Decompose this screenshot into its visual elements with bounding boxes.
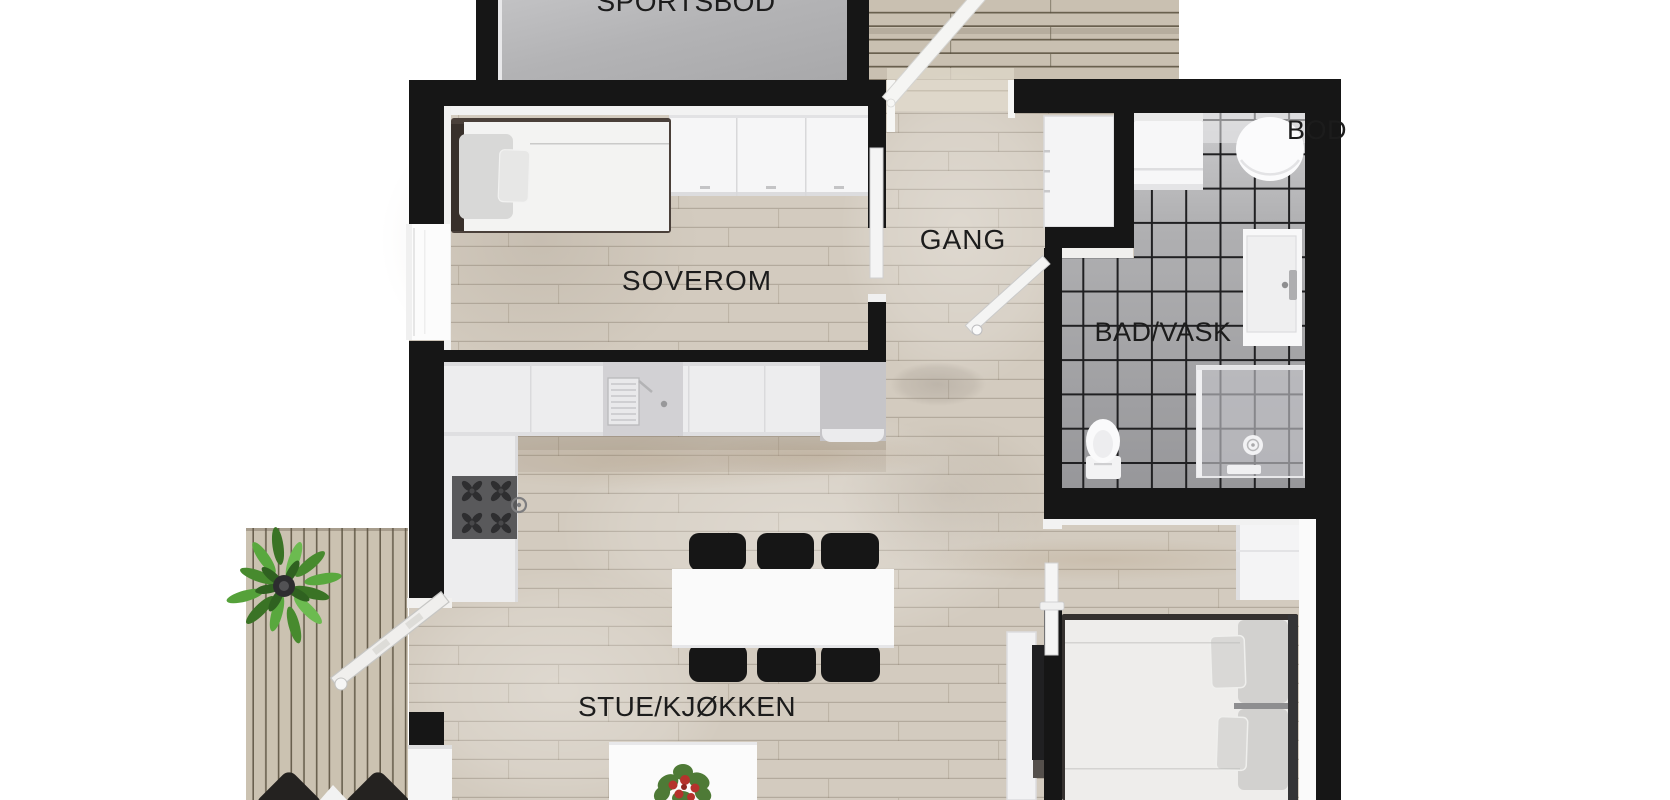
svg-text:SOVEROM: SOVEROM	[622, 265, 772, 296]
svg-text:BOD: BOD	[1287, 115, 1347, 145]
svg-text:SPORTSBOD: SPORTSBOD	[597, 0, 776, 17]
svg-text:STUE/KJØKKEN: STUE/KJØKKEN	[578, 691, 796, 722]
svg-text:BAD/VASK: BAD/VASK	[1094, 317, 1231, 347]
svg-text:GANG: GANG	[920, 224, 1006, 255]
